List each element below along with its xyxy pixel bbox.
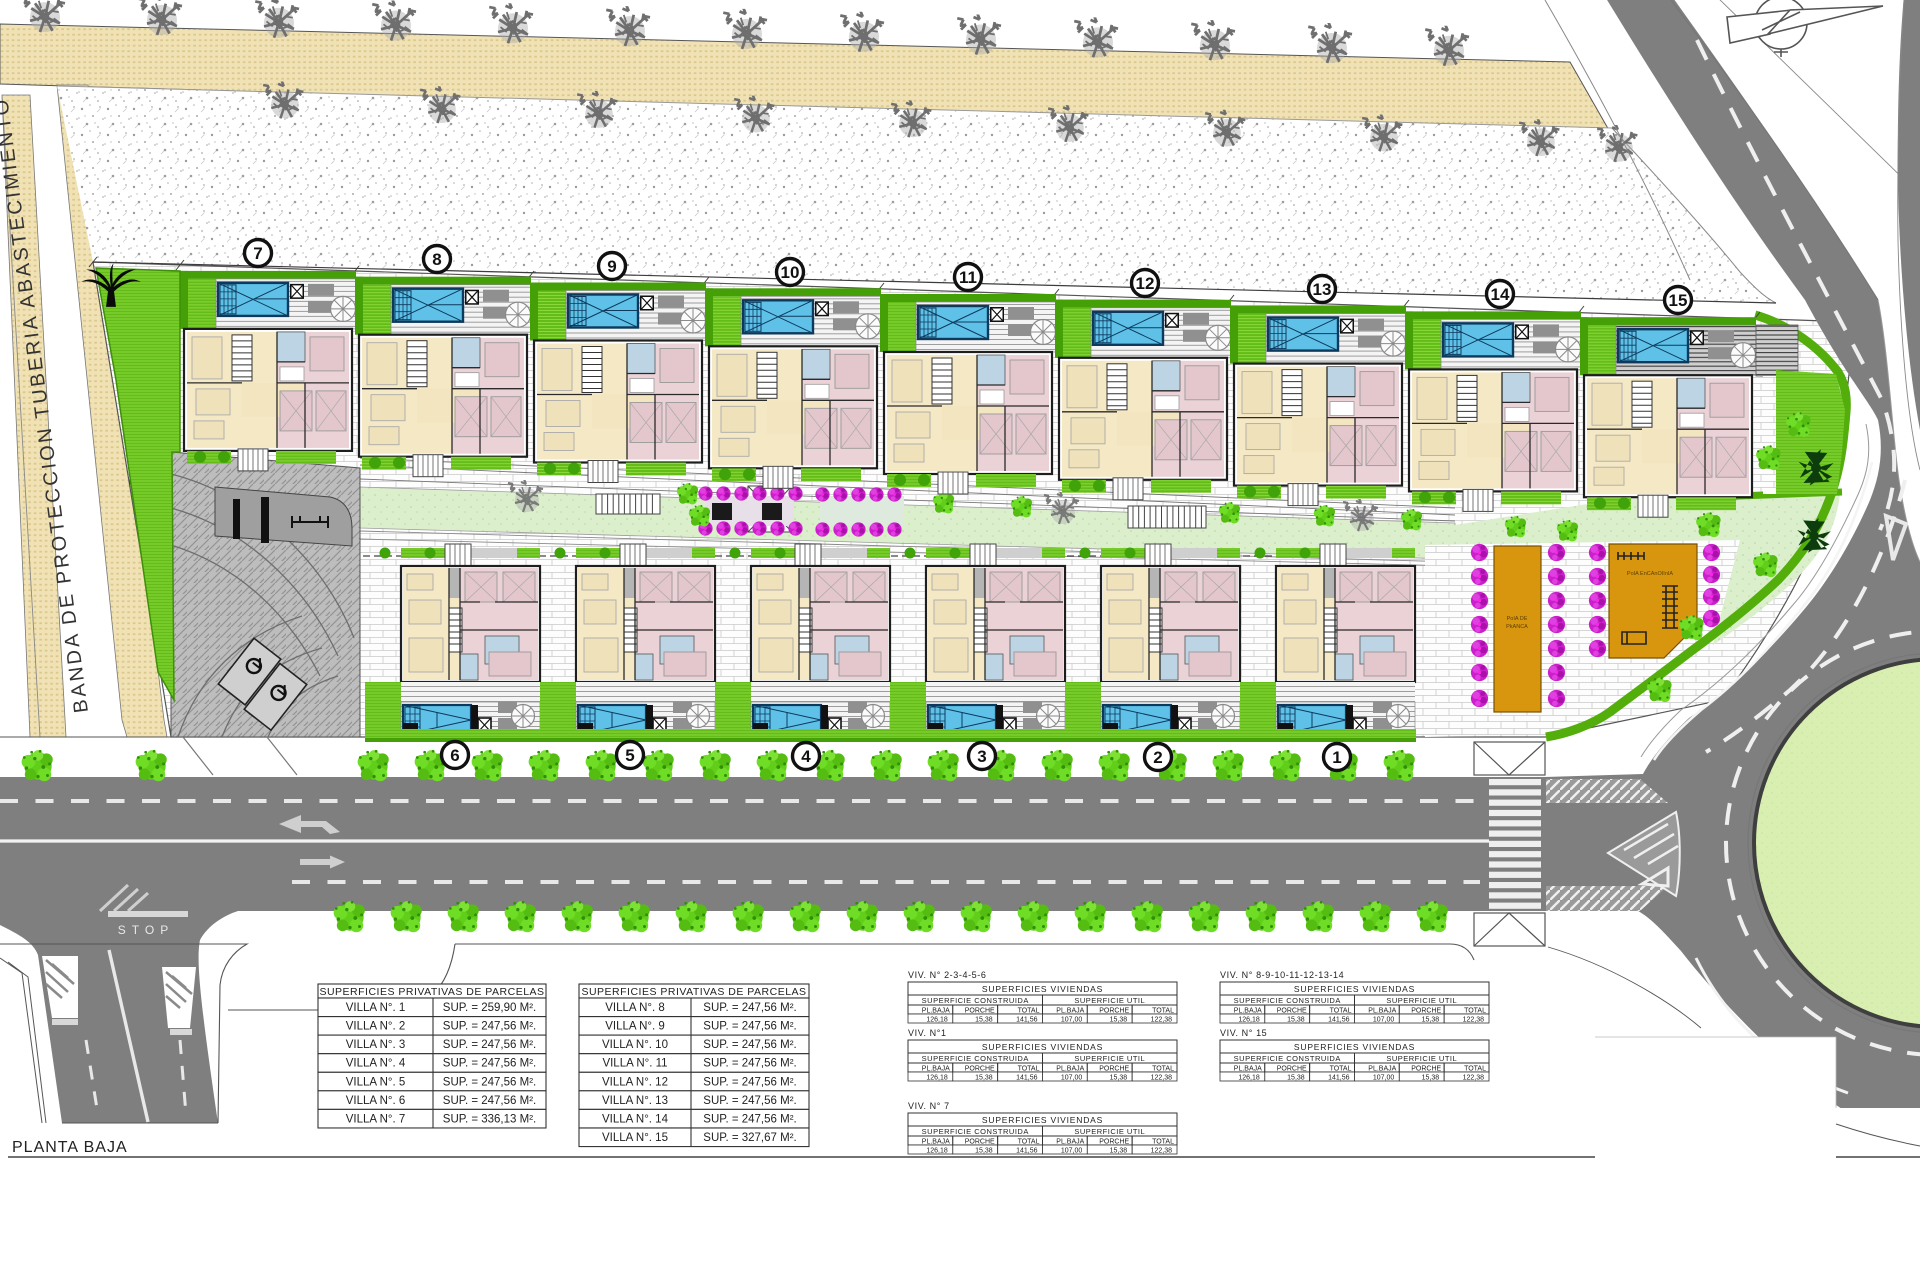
- svg-text:PL.BAJA: PL.BAJA: [922, 1066, 950, 1073]
- svg-text:PORCHE: PORCHE: [1411, 1008, 1441, 1015]
- svg-text:SUPERFICIE CONSTRUIDA: SUPERFICIE CONSTRUIDA: [922, 996, 1029, 1005]
- svg-text:VILLA N°. 13: VILLA N°. 13: [602, 1095, 668, 1107]
- svg-text:VILLA N°. 6: VILLA N°. 6: [346, 1095, 406, 1107]
- svg-text:VIV. N° 2-3-4-5-6: VIV. N° 2-3-4-5-6: [908, 970, 987, 980]
- svg-text:SUP. = 247,56 M².: SUP. = 247,56 M².: [443, 1021, 536, 1033]
- svg-text:SUPERFICIES VIVIENDAS: SUPERFICIES VIVIENDAS: [1294, 1042, 1415, 1052]
- svg-text:SUP. = 327,67 M².: SUP. = 327,67 M².: [703, 1132, 796, 1144]
- svg-text:107,00: 107,00: [1373, 1075, 1395, 1082]
- svg-text:15,38: 15,38: [1422, 1017, 1440, 1024]
- svg-text:141,56: 141,56: [1016, 1148, 1038, 1155]
- svg-text:VILLA N°. 4: VILLA N°. 4: [346, 1058, 406, 1070]
- svg-text:PORCHE: PORCHE: [1277, 1066, 1307, 1073]
- svg-text:SUP. = 247,56 M².: SUP. = 247,56 M².: [703, 1095, 796, 1107]
- svg-text:2: 2: [1153, 748, 1162, 767]
- svg-text:5: 5: [625, 746, 634, 765]
- svg-text:7: 7: [253, 244, 262, 263]
- svg-text:15,38: 15,38: [1110, 1148, 1128, 1155]
- svg-text:15,38: 15,38: [1422, 1075, 1440, 1082]
- svg-text:VIV. N° 15: VIV. N° 15: [1220, 1028, 1267, 1038]
- svg-text:VILLA N°. 1: VILLA N°. 1: [346, 1002, 406, 1014]
- svg-text:PkANCA: PkANCA: [1506, 624, 1528, 630]
- svg-text:6: 6: [450, 746, 459, 765]
- svg-text:126,18: 126,18: [926, 1017, 948, 1024]
- svg-text:VILLA N°. 14: VILLA N°. 14: [602, 1113, 669, 1125]
- svg-text:15,38: 15,38: [975, 1075, 993, 1082]
- svg-text:SUPERFICIES VIVIENDAS: SUPERFICIES VIVIENDAS: [1294, 984, 1415, 994]
- svg-text:141,56: 141,56: [1016, 1017, 1038, 1024]
- svg-text:126,18: 126,18: [926, 1075, 948, 1082]
- svg-text:PL.BAJA: PL.BAJA: [1234, 1008, 1262, 1015]
- svg-text:15,38: 15,38: [1287, 1075, 1305, 1082]
- svg-text:PoIA EnCAnOIInIA: PoIA EnCAnOIInIA: [1627, 571, 1673, 577]
- svg-text:PORCHE: PORCHE: [1099, 1008, 1129, 1015]
- svg-text:SUP. = 247,56 M².: SUP. = 247,56 M².: [443, 1076, 536, 1088]
- svg-text:4: 4: [801, 747, 811, 766]
- svg-text:VILLA N°. 8: VILLA N°. 8: [605, 1002, 665, 1014]
- svg-text:PORCHE: PORCHE: [965, 1008, 995, 1015]
- svg-text:8: 8: [432, 250, 441, 269]
- svg-text:107,00: 107,00: [1061, 1017, 1083, 1024]
- svg-text:PORCHE: PORCHE: [965, 1139, 995, 1146]
- svg-text:107,00: 107,00: [1061, 1075, 1083, 1082]
- svg-text:10: 10: [781, 263, 800, 282]
- svg-text:PL.BAJA: PL.BAJA: [1234, 1066, 1262, 1073]
- svg-text:PoIA DE: PoIA DE: [1507, 616, 1528, 622]
- svg-text:SUP. = 259,90 M².: SUP. = 259,90 M².: [443, 1002, 536, 1014]
- svg-text:VILLA N°. 5: VILLA N°. 5: [346, 1076, 406, 1088]
- svg-text:TOTAL: TOTAL: [1152, 1008, 1174, 1015]
- svg-text:TOTAL: TOTAL: [1464, 1066, 1486, 1073]
- svg-text:STOP: STOP: [118, 923, 174, 937]
- svg-text:TOTAL: TOTAL: [1330, 1008, 1352, 1015]
- svg-text:12: 12: [1136, 274, 1155, 293]
- svg-text:VILLA N°. 2: VILLA N°. 2: [346, 1021, 406, 1033]
- svg-text:15,38: 15,38: [1287, 1017, 1305, 1024]
- svg-text:SUP. = 247,56 M².: SUP. = 247,56 M².: [443, 1095, 536, 1107]
- svg-text:122,38: 122,38: [1463, 1075, 1485, 1082]
- svg-text:141,56: 141,56: [1328, 1075, 1350, 1082]
- svg-text:SUPERFICIE CONSTRUIDA: SUPERFICIE CONSTRUIDA: [1234, 996, 1341, 1005]
- svg-text:TOTAL: TOTAL: [1152, 1066, 1174, 1073]
- svg-text:SUPERFICIE UTIL: SUPERFICIE UTIL: [1074, 1054, 1145, 1063]
- svg-text:VILLA N°. 7: VILLA N°. 7: [346, 1113, 406, 1125]
- svg-text:PORCHE: PORCHE: [1099, 1139, 1129, 1146]
- svg-text:PL.BAJA: PL.BAJA: [922, 1008, 950, 1015]
- svg-text:VIV. N°1: VIV. N°1: [908, 1028, 947, 1038]
- svg-text:1: 1: [1332, 748, 1341, 767]
- svg-text:SUP. = 247,56 M².: SUP. = 247,56 M².: [703, 1021, 796, 1033]
- svg-text:VILLA N°. 10: VILLA N°. 10: [602, 1039, 668, 1051]
- svg-text:SUPERFICIE CONSTRUIDA: SUPERFICIE CONSTRUIDA: [922, 1127, 1029, 1136]
- svg-text:PORCHE: PORCHE: [1411, 1066, 1441, 1073]
- svg-text:15,38: 15,38: [975, 1148, 993, 1155]
- svg-text:VILLA N°. 11: VILLA N°. 11: [602, 1058, 667, 1070]
- svg-text:SUPERFICIES PRIVATIVAS DE PARC: SUPERFICIES PRIVATIVAS DE PARCELAS: [581, 986, 806, 998]
- svg-text:PL.BAJA: PL.BAJA: [1056, 1066, 1084, 1073]
- svg-text:VILLA N°. 15: VILLA N°. 15: [602, 1132, 668, 1144]
- svg-text:SUPERFICIE CONSTRUIDA: SUPERFICIE CONSTRUIDA: [1234, 1054, 1341, 1063]
- svg-text:141,56: 141,56: [1016, 1075, 1038, 1082]
- svg-text:PLANTA BAJA: PLANTA BAJA: [12, 1139, 128, 1156]
- svg-text:122,38: 122,38: [1151, 1075, 1173, 1082]
- svg-text:VILLA N°. 3: VILLA N°. 3: [346, 1039, 406, 1051]
- svg-text:SUPERFICIES PRIVATIVAS DE PARC: SUPERFICIES PRIVATIVAS DE PARCELAS: [319, 986, 544, 998]
- svg-text:TOTAL: TOTAL: [1464, 1008, 1486, 1015]
- svg-text:TOTAL: TOTAL: [1018, 1066, 1040, 1073]
- svg-text:126,18: 126,18: [1238, 1075, 1260, 1082]
- svg-text:13: 13: [1313, 280, 1332, 299]
- svg-text:126,18: 126,18: [1238, 1017, 1260, 1024]
- svg-text:15: 15: [1669, 291, 1688, 310]
- svg-text:126,18: 126,18: [926, 1148, 948, 1155]
- svg-text:11: 11: [959, 268, 977, 287]
- svg-text:15,38: 15,38: [1110, 1075, 1128, 1082]
- svg-text:PORCHE: PORCHE: [1277, 1008, 1307, 1015]
- svg-text:SUP. = 247,56 M².: SUP. = 247,56 M².: [703, 1113, 796, 1125]
- svg-text:TOTAL: TOTAL: [1330, 1066, 1352, 1073]
- svg-text:107,00: 107,00: [1061, 1148, 1083, 1155]
- svg-text:9: 9: [607, 257, 616, 276]
- svg-text:SUPERFICIE CONSTRUIDA: SUPERFICIE CONSTRUIDA: [922, 1054, 1029, 1063]
- svg-text:122,38: 122,38: [1463, 1017, 1485, 1024]
- svg-text:SUP. = 247,56 M².: SUP. = 247,56 M².: [703, 1002, 796, 1014]
- svg-text:TOTAL: TOTAL: [1152, 1139, 1174, 1146]
- svg-text:SUPERFICIE UTIL: SUPERFICIE UTIL: [1386, 996, 1457, 1005]
- svg-text:PL.BAJA: PL.BAJA: [922, 1139, 950, 1146]
- svg-text:14: 14: [1491, 285, 1510, 304]
- svg-text:SUP. = 247,56 M².: SUP. = 247,56 M².: [443, 1039, 536, 1051]
- svg-text:SUPERFICIE UTIL: SUPERFICIE UTIL: [1386, 1054, 1457, 1063]
- svg-text:SUP. = 247,56 M².: SUP. = 247,56 M².: [703, 1076, 796, 1088]
- svg-text:3: 3: [977, 747, 986, 766]
- svg-text:SUP. = 336,13 M².: SUP. = 336,13 M².: [443, 1113, 536, 1125]
- svg-text:VILLA N°. 9: VILLA N°. 9: [605, 1021, 665, 1033]
- svg-text:TOTAL: TOTAL: [1018, 1008, 1040, 1015]
- svg-text:VILLA N°. 12: VILLA N°. 12: [602, 1076, 668, 1088]
- svg-text:PL.BAJA: PL.BAJA: [1056, 1008, 1084, 1015]
- svg-text:PL.BAJA: PL.BAJA: [1368, 1066, 1396, 1073]
- svg-text:PL.BAJA: PL.BAJA: [1056, 1139, 1084, 1146]
- svg-text:15,38: 15,38: [975, 1017, 993, 1024]
- svg-text:SUPERFICIES VIVIENDAS: SUPERFICIES VIVIENDAS: [982, 1115, 1103, 1125]
- svg-text:PORCHE: PORCHE: [965, 1066, 995, 1073]
- svg-text:SUP. = 247,56 M².: SUP. = 247,56 M².: [443, 1058, 536, 1070]
- svg-text:PORCHE: PORCHE: [1099, 1066, 1129, 1073]
- svg-text:122,38: 122,38: [1151, 1017, 1173, 1024]
- svg-text:SUPERFICIE UTIL: SUPERFICIE UTIL: [1074, 996, 1145, 1005]
- svg-text:SUPERFICIES VIVIENDAS: SUPERFICIES VIVIENDAS: [982, 1042, 1103, 1052]
- svg-text:SUPERFICIES VIVIENDAS: SUPERFICIES VIVIENDAS: [982, 984, 1103, 994]
- svg-text:SUP. = 247,56 M².: SUP. = 247,56 M².: [703, 1039, 796, 1051]
- svg-text:SUP. = 247,56 M².: SUP. = 247,56 M².: [703, 1058, 796, 1070]
- svg-text:VIV. N° 7: VIV. N° 7: [908, 1101, 950, 1111]
- svg-text:PL.BAJA: PL.BAJA: [1368, 1008, 1396, 1015]
- svg-text:TOTAL: TOTAL: [1018, 1139, 1040, 1146]
- svg-text:15,38: 15,38: [1110, 1017, 1128, 1024]
- svg-text:141,56: 141,56: [1328, 1017, 1350, 1024]
- svg-text:VIV. N° 8-9-10-11-12-13-14: VIV. N° 8-9-10-11-12-13-14: [1220, 970, 1344, 980]
- svg-text:122,38: 122,38: [1151, 1148, 1173, 1155]
- svg-text:107,00: 107,00: [1373, 1017, 1395, 1024]
- svg-text:SUPERFICIE UTIL: SUPERFICIE UTIL: [1074, 1127, 1145, 1136]
